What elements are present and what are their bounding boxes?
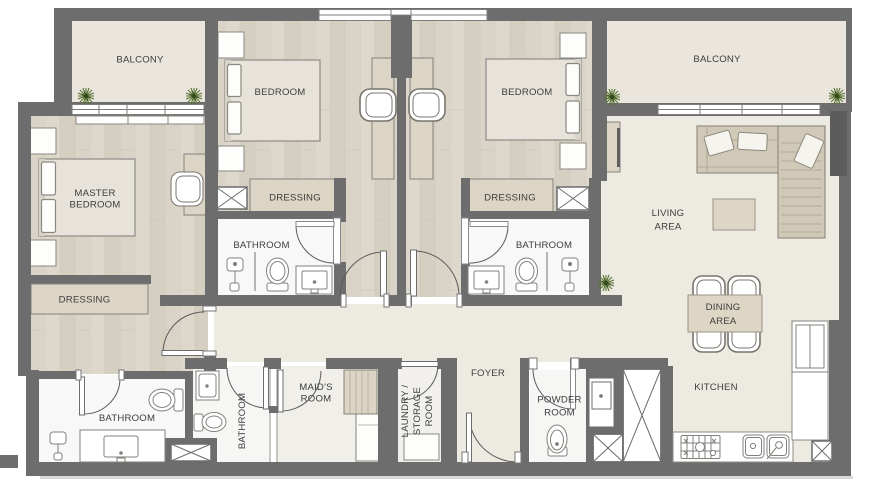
svg-text:BATHROOM: BATHROOM: [99, 413, 155, 424]
svg-text:MAID'S: MAID'S: [299, 382, 332, 393]
svg-text:LIVING: LIVING: [652, 208, 685, 219]
svg-text:FOYER: FOYER: [471, 368, 505, 379]
svg-text:LAUNDRY /: LAUNDRY /: [400, 385, 411, 438]
svg-text:MASTER: MASTER: [74, 188, 115, 199]
svg-text:BEDROOM: BEDROOM: [255, 87, 306, 98]
svg-text:BALCONY: BALCONY: [116, 55, 164, 66]
svg-text:ROOM: ROOM: [301, 394, 332, 405]
svg-text:BATHROOM: BATHROOM: [516, 240, 572, 251]
svg-text:BEDROOM: BEDROOM: [70, 200, 121, 211]
svg-text:STORAGE: STORAGE: [412, 387, 423, 435]
svg-text:ROOM: ROOM: [544, 408, 575, 419]
svg-text:DRESSING: DRESSING: [484, 193, 536, 204]
svg-text:BEDROOM: BEDROOM: [502, 87, 553, 98]
svg-text:AREA: AREA: [655, 222, 682, 233]
svg-text:BATHROOM: BATHROOM: [237, 393, 248, 449]
svg-text:POWDER: POWDER: [537, 395, 581, 406]
svg-text:BATHROOM: BATHROOM: [233, 240, 289, 251]
svg-text:DRESSING: DRESSING: [59, 295, 111, 306]
svg-text:AREA: AREA: [710, 316, 737, 327]
svg-text:DRESSING: DRESSING: [269, 193, 321, 204]
svg-text:KITCHEN: KITCHEN: [694, 382, 738, 393]
svg-text:BALCONY: BALCONY: [693, 54, 741, 65]
svg-text:ROOM: ROOM: [424, 396, 435, 427]
svg-text:DINING: DINING: [706, 302, 741, 313]
